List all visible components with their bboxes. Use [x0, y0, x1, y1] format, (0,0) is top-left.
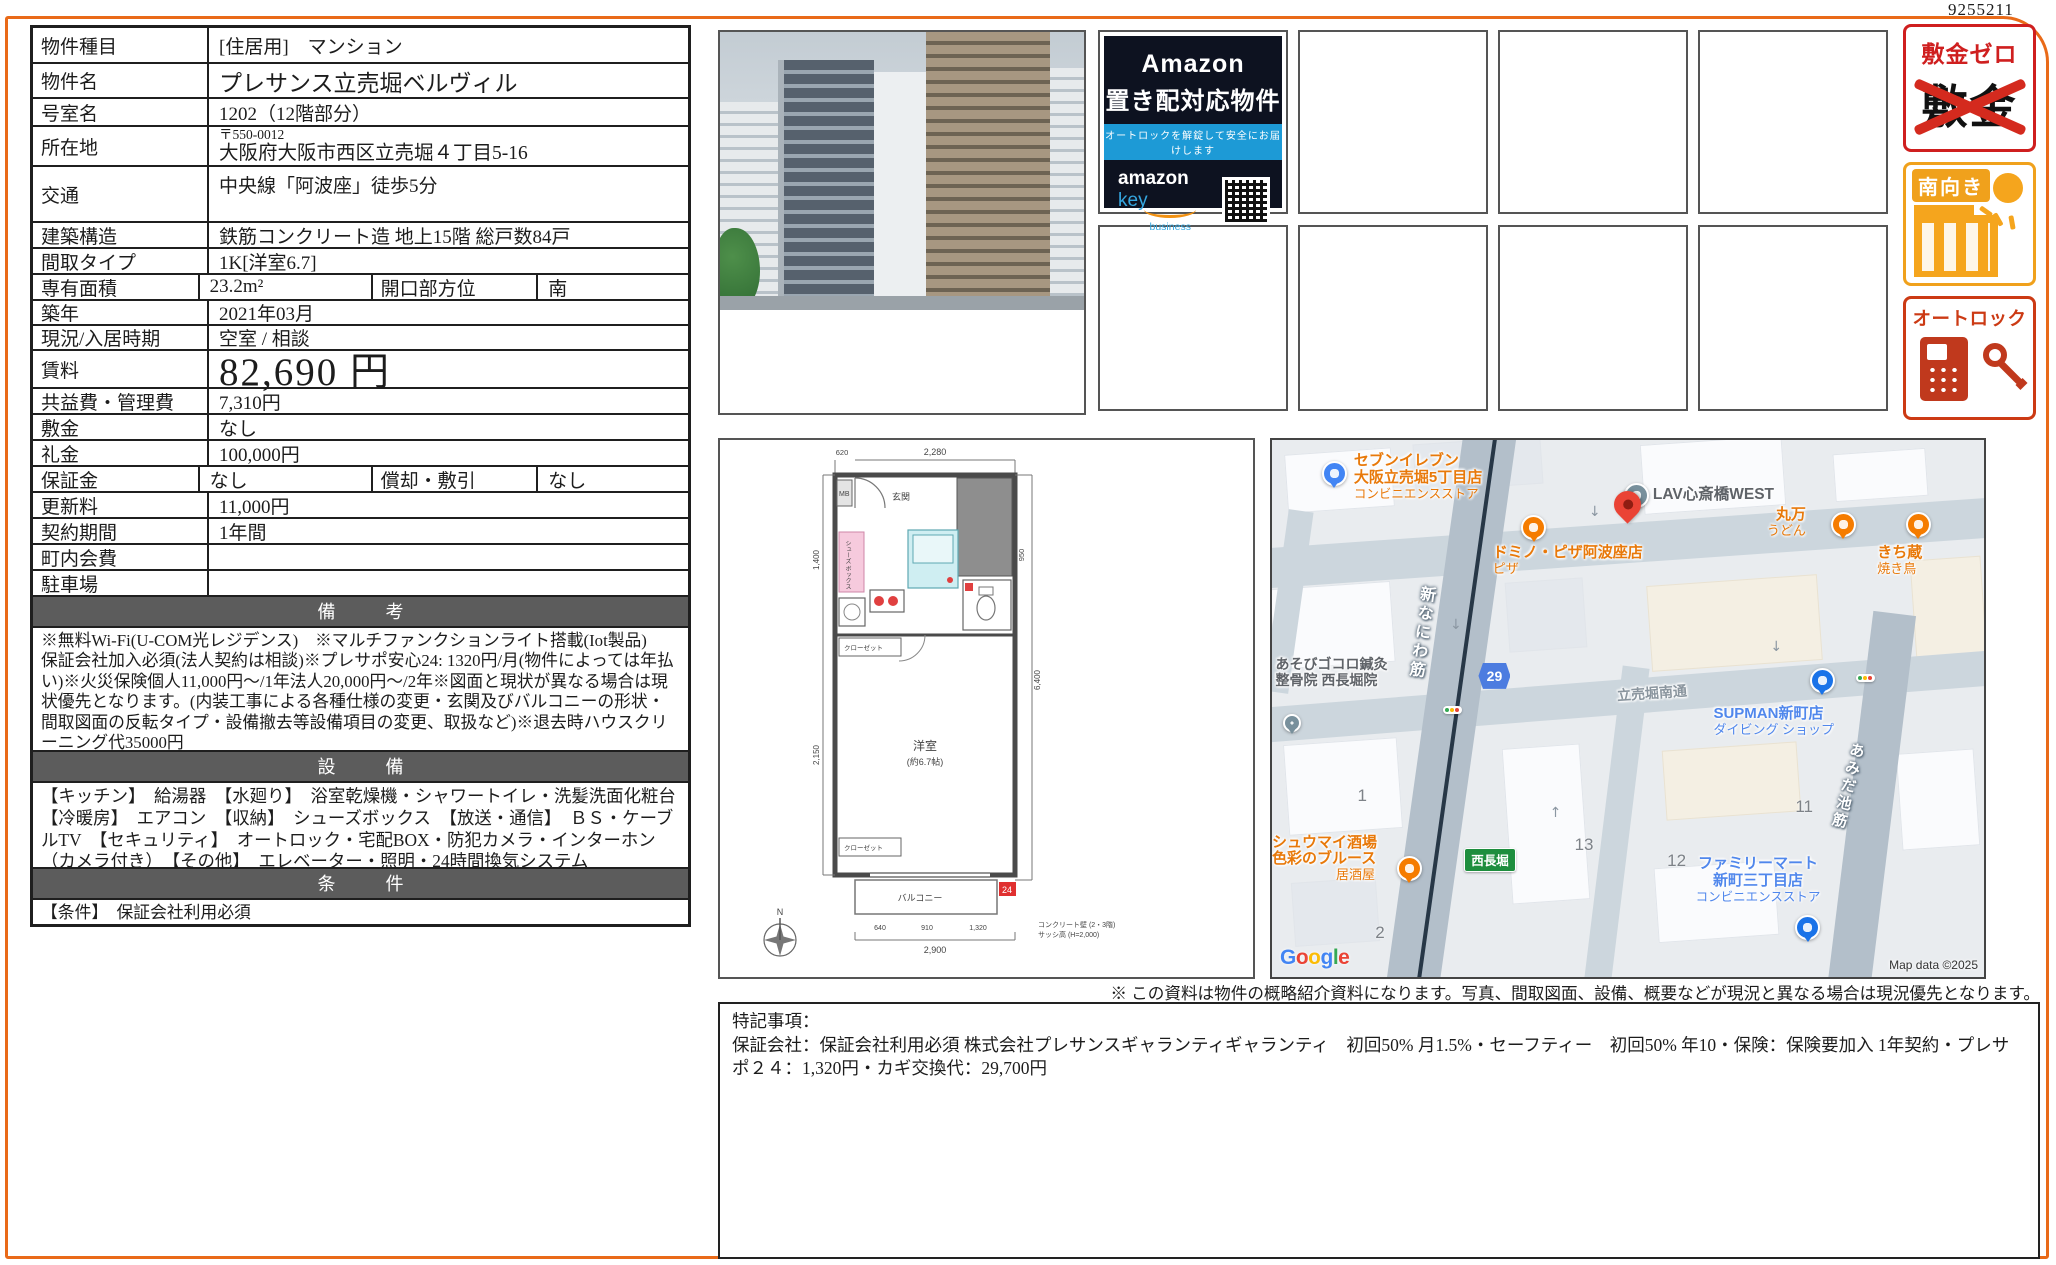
- floorplan-drawing: 2,280 620 玄関 MB シューズ ボックス クローゼット 洋室 (約6.…: [720, 440, 1253, 977]
- building-far-right: [1050, 68, 1084, 310]
- amazon-key-word1: amazon: [1118, 168, 1189, 189]
- row-value: 7,310円: [207, 389, 688, 413]
- row-label: 交通: [33, 167, 207, 221]
- row-value: [207, 571, 688, 595]
- table-row: 号室名1202（12階部分）: [33, 97, 688, 125]
- row-value: 11,000円: [207, 493, 688, 517]
- empty-photo-cell: [1498, 225, 1688, 411]
- map-copyright: Map data ©2025: [1889, 958, 1978, 972]
- equipment-text: 【キッチン】 給湯器 【水廻り】 浴室乾燥機・シャワートイレ・洗髪洗面化粧台 【…: [33, 781, 688, 867]
- remarks-line2: 保証会社加入必須(法人契約は相談)※プレサポ安心24: 1320円/月(物件によ…: [41, 651, 680, 753]
- floorplan-frame: 2,280 620 玄関 MB シューズ ボックス クローゼット 洋室 (約6.…: [718, 438, 1255, 979]
- table-row: 所在地 〒550-0012 大阪府大阪市西区立売堀４丁目5-16: [33, 125, 688, 165]
- table-row: 建築構造鉄筋コンクリート造 地上15階 総戸数84戸: [33, 221, 688, 247]
- poi-name: あそびゴコロ鍼灸: [1276, 657, 1388, 673]
- row-label: 礼金: [33, 441, 207, 465]
- parcel-number: 12: [1667, 851, 1686, 871]
- table-row: 更新料11,000円: [33, 491, 688, 517]
- mb-label: MB: [839, 491, 850, 498]
- poi-label: ドミノ・ピザ阿波座店 ピザ: [1493, 545, 1643, 576]
- row-value: 2021年03月: [207, 301, 688, 324]
- poi-category: ダイビング ショップ: [1713, 723, 1834, 738]
- empty-photo-cell: [1298, 225, 1488, 411]
- building-icon: [1914, 215, 1998, 277]
- dim-top-left: 620: [836, 448, 849, 457]
- shoebox-label: シューズ ボックス: [844, 540, 851, 590]
- photo-grid: Amazon 置き配対応物件 オートロックを解錠して安全にお届けします amaz…: [1098, 30, 1890, 415]
- row-label: 共益費・管理費: [33, 389, 207, 413]
- poi-label: シュウマイ酒場 色彩のブルース 居酒屋: [1272, 835, 1377, 883]
- amazon-key-word2: key: [1118, 190, 1148, 211]
- route-shield: 29: [1478, 663, 1510, 689]
- building-right: [926, 32, 1050, 310]
- compass-icon: N: [764, 907, 796, 956]
- dim-bottom: 2,900: [924, 945, 947, 955]
- poi-category: ピザ: [1493, 562, 1643, 577]
- balcony-label: バルコニー: [898, 893, 943, 903]
- traffic-light-icon: [1856, 674, 1875, 682]
- dim-b2: 910: [921, 925, 933, 932]
- dim-top: 2,280: [924, 447, 947, 457]
- empty-photo-cell: [1498, 30, 1688, 214]
- disclaimer-text: ※ この資料は物件の概略紹介資料になります。写真、間取図面、設備、概要などが現況…: [718, 980, 2040, 1004]
- table-row: 保証金 なし 償却・敷引 なし: [33, 465, 688, 491]
- restaurant-pin: [1906, 512, 1931, 537]
- row-label: 物件種目: [33, 28, 207, 62]
- row-label: 町内会費: [33, 545, 207, 569]
- map-building: [1502, 744, 1591, 905]
- table-row: 間取タイプ1K[洋室6.7]: [33, 247, 688, 273]
- poi-sub: 大阪立売堀5丁目店: [1354, 470, 1482, 487]
- sun-ray-icon: [2008, 215, 2015, 230]
- building-tower: [778, 60, 874, 310]
- poi-category: コンビニエンスストア: [1354, 487, 1482, 501]
- row-value-2: 南: [536, 275, 688, 299]
- poi-label: セブンイレブン 大阪立売堀5丁目店 コンビニエンスストア: [1354, 453, 1482, 501]
- poi-label: あそびゴコロ鍼灸 整骨院 西長堀院: [1276, 657, 1388, 688]
- street: [720, 296, 1084, 310]
- map-building: [1661, 741, 1801, 820]
- dim-left2: 2,150: [812, 744, 821, 765]
- poi-category: コンビニエンスストア: [1696, 890, 1821, 904]
- area-value: 23.2m²: [210, 276, 361, 298]
- table-row: 敷金なし: [33, 413, 688, 439]
- plan-marker: 24: [1002, 885, 1012, 895]
- special-notes-box: 特記事項： 保証会社：保証会社利用必須 株式会社プレサンスギャランティギャランテ…: [718, 1002, 2040, 1259]
- south-facing-title: 南向き: [1912, 169, 1990, 202]
- dim-left1: 1,400: [812, 549, 821, 570]
- amazon-subtitle: 置き配対応物件: [1106, 81, 1281, 116]
- amazon-strip-text: オートロックを解錠して安全にお届けします: [1104, 124, 1282, 160]
- room-size-label: (約6.7帖): [907, 756, 944, 767]
- road-arrow-icon: ↓: [1770, 639, 1782, 655]
- station-badge: 西長堀: [1464, 848, 1516, 872]
- map-building: [1895, 749, 1980, 851]
- row-label-2: 償却・敷引: [371, 467, 537, 491]
- remarks-line1: ※無料Wi-Fi(U-COM光レジデンス) ※マルチファンクションライト搭載(I…: [41, 631, 680, 651]
- row-label: 間取タイプ: [33, 249, 207, 273]
- row-value: なし: [198, 467, 371, 491]
- intercom-icon: [1920, 337, 1968, 401]
- row-value: 〒550-0012 大阪府大阪市西区立売堀４丁目5-16: [207, 127, 688, 165]
- map-building: [1833, 448, 1929, 503]
- row-value: 100,000円: [207, 441, 688, 465]
- autolock-badge: オートロック: [1903, 296, 2036, 420]
- poi-name: きち蔵: [1877, 545, 1922, 562]
- dim-b1: 640: [874, 925, 886, 932]
- compass-north: N: [777, 907, 784, 917]
- table-row: 礼金100,000円: [33, 439, 688, 465]
- south-facing-badge: 南向き: [1903, 162, 2036, 286]
- amazon-business-label: business: [1150, 221, 1191, 233]
- parcel-number: 11: [1795, 797, 1813, 817]
- section-header-remarks: 備 考: [33, 595, 688, 626]
- remarks-text: ※無料Wi-Fi(U-COM光レジデンス) ※マルチファンクションライト搭載(I…: [33, 626, 688, 750]
- map-building: [1283, 737, 1403, 836]
- table-row: 賃料82,690 円: [33, 349, 688, 387]
- map-building: [1291, 877, 1381, 947]
- building-white: [874, 72, 926, 310]
- parcel-number: 1: [1357, 786, 1366, 806]
- empty-photo-cell: [1698, 30, 1888, 214]
- building-photo: [720, 32, 1084, 310]
- special-notes-body: 保証会社：保証会社利用必須 株式会社プレサンスギャランティギャランティ 初回50…: [732, 1034, 2026, 1081]
- table-row: 契約期間1年間: [33, 517, 688, 543]
- map: 新なにわ筋 あみだ池筋 立売堀南通 ↓ ↓ ↑ ↓ 1 2 13 11 12 セ…: [1270, 438, 1986, 979]
- row-label: 駐車場: [33, 571, 207, 595]
- row-label: 現況/入居時期: [33, 326, 207, 349]
- special-notes-title: 特記事項：: [732, 1010, 2026, 1034]
- closet2-label: クローゼット: [844, 843, 883, 852]
- poi-name: 丸万: [1767, 507, 1806, 524]
- property-spec-table: 物件種目[住居用] マンション 物件名プレサンス立売堀ベルヴィル 号室名1202…: [30, 25, 691, 927]
- row-value: 中央線「阿波座」徒歩5分: [207, 167, 688, 221]
- google-logo: Google: [1280, 946, 1349, 970]
- poi-name: シュウマイ酒場: [1272, 835, 1377, 852]
- traffic-light-icon: [1443, 706, 1462, 714]
- table-row: 駐車場: [33, 569, 688, 595]
- row-value-2: なし: [536, 467, 688, 491]
- parcel-number: 2: [1375, 923, 1384, 943]
- place-pin: [1283, 714, 1301, 732]
- empty-photo-cell: [1098, 225, 1288, 411]
- plan-note1: コンクリート壁 (2・3階): [1038, 920, 1115, 929]
- table-row: 物件名プレサンス立売堀ベルヴィル: [33, 62, 688, 97]
- amazon-key-badge: Amazon 置き配対応物件 オートロックを解錠して安全にお届けします amaz…: [1098, 30, 1288, 214]
- rent-value: 82,690 円: [207, 351, 688, 387]
- row-value: 鉄筋コンクリート造 地上15階 総戸数84戸: [207, 223, 688, 247]
- dim-right-outer: 6,400: [1033, 669, 1042, 690]
- poi-sub: 色彩のブルース: [1272, 851, 1377, 868]
- amazon-url: www.amazon.co.jp/keyforbusiness: [1103, 240, 1283, 252]
- poi-category: 焼き鳥: [1877, 562, 1922, 577]
- row-value: 1年間: [207, 519, 688, 543]
- map-building: [1647, 574, 1823, 672]
- closet-label: クローゼット: [844, 643, 883, 652]
- poi-name: ファミリーマート: [1696, 856, 1821, 873]
- table-row: 町内会費: [33, 543, 688, 569]
- row-label: 物件名: [33, 64, 207, 97]
- deposit-crossed-icon: 敷金: [1918, 75, 2022, 139]
- postal-code: 〒550-0012: [219, 128, 528, 143]
- poi-name: セブンイレブン: [1354, 453, 1482, 470]
- row-label: 築年: [33, 301, 207, 324]
- empty-photo-cell: [1698, 225, 1888, 411]
- empty-photo-cell: [1298, 30, 1488, 214]
- qr-code-icon: [1222, 177, 1270, 225]
- row-label: 専有面積: [33, 275, 198, 299]
- poi-label: LAV心斎橋WEST: [1653, 486, 1774, 503]
- row-value: プレサンス立売堀ベルヴィル: [207, 64, 688, 97]
- entrance-label: 玄関: [892, 491, 910, 502]
- poi-label: 丸万 うどん: [1767, 507, 1806, 538]
- amazon-title: Amazon: [1141, 50, 1244, 79]
- row-label: 敷金: [33, 415, 207, 439]
- shop-pin: [1810, 668, 1835, 693]
- table-row: 築年2021年03月: [33, 299, 688, 324]
- row-value: 1202（12階部分）: [207, 99, 688, 125]
- row-label: 建築構造: [33, 223, 207, 247]
- room-label: 洋室: [913, 738, 937, 753]
- poi-sub: 整骨院 西長堀院: [1276, 673, 1388, 689]
- deposit-value: なし: [210, 466, 361, 493]
- row-value: 23.2m²: [198, 275, 371, 299]
- table-row: 共益費・管理費7,310円: [33, 387, 688, 413]
- poi-category: 居酒屋: [1336, 868, 1377, 883]
- row-label-2: 開口部方位: [371, 275, 537, 299]
- poi-sub: 新町三丁目店: [1696, 873, 1821, 890]
- convenience-store-pin: [1795, 915, 1820, 940]
- dim-b3: 1,320: [969, 925, 987, 932]
- table-row: 物件種目[住居用] マンション: [33, 28, 688, 62]
- row-label: 号室名: [33, 99, 207, 125]
- conditions-text: 【条件】 保証会社利用必須: [33, 898, 688, 924]
- poi-label: きち蔵 焼き鳥: [1877, 545, 1922, 576]
- table-row: 交通中央線「阿波座」徒歩5分: [33, 165, 688, 221]
- poi-name: SUPMAN新町店: [1713, 706, 1834, 723]
- row-label: 契約期間: [33, 519, 207, 543]
- deposit-zero-title: 敷金ゼロ: [1906, 35, 2033, 69]
- deposit-zero-badge: 敷金ゼロ 敷金: [1903, 24, 2036, 152]
- dim-right-inner: 950: [1017, 549, 1026, 562]
- document-number: 9255211: [1948, 0, 2014, 20]
- restaurant-pin: [1397, 856, 1422, 881]
- sun-icon: [1993, 173, 2023, 203]
- road-arrow-icon: ↑: [1550, 805, 1562, 821]
- amazon-key-logo: amazon key business: [1118, 168, 1222, 233]
- section-header-equipment: 設 備: [33, 750, 688, 781]
- row-value: なし: [207, 415, 688, 439]
- road-arrow-icon: ↓: [1450, 617, 1462, 633]
- plan-note2: サッシ高 (H=2,000): [1038, 930, 1099, 939]
- row-label: 賃料: [33, 351, 207, 387]
- building-photo-frame: [718, 30, 1086, 415]
- map-building: [1505, 577, 1588, 652]
- row-value: [住居用] マンション: [207, 28, 688, 62]
- road-arrow-icon: ↓: [1589, 504, 1601, 520]
- row-label: 保証金: [33, 467, 198, 491]
- address: 大阪府大阪市西区立売堀４丁目5-16: [219, 143, 528, 164]
- row-label: 所在地: [33, 127, 207, 165]
- row-value: 1K[洋室6.7]: [207, 249, 688, 273]
- row-label: 更新料: [33, 493, 207, 517]
- poi-category: うどん: [1767, 524, 1806, 539]
- row-value: [207, 545, 688, 569]
- table-row: 専有面積 23.2m² 開口部方位 南: [33, 273, 688, 299]
- map-building: [1640, 438, 1787, 515]
- parcel-number: 13: [1575, 835, 1594, 855]
- amazon-smile-icon: [1144, 208, 1196, 218]
- poi-label: SUPMAN新町店 ダイビング ショップ: [1713, 706, 1834, 737]
- amazon-badge-panel: Amazon 置き配対応物件 オートロックを解錠して安全にお届けします amaz…: [1104, 36, 1282, 208]
- poi-name: ドミノ・ピザ阿波座店: [1493, 545, 1643, 562]
- autolock-title: オートロック: [1906, 305, 2033, 331]
- poi-label: ファミリーマート 新町三丁目店 コンビニエンスストア: [1696, 856, 1821, 904]
